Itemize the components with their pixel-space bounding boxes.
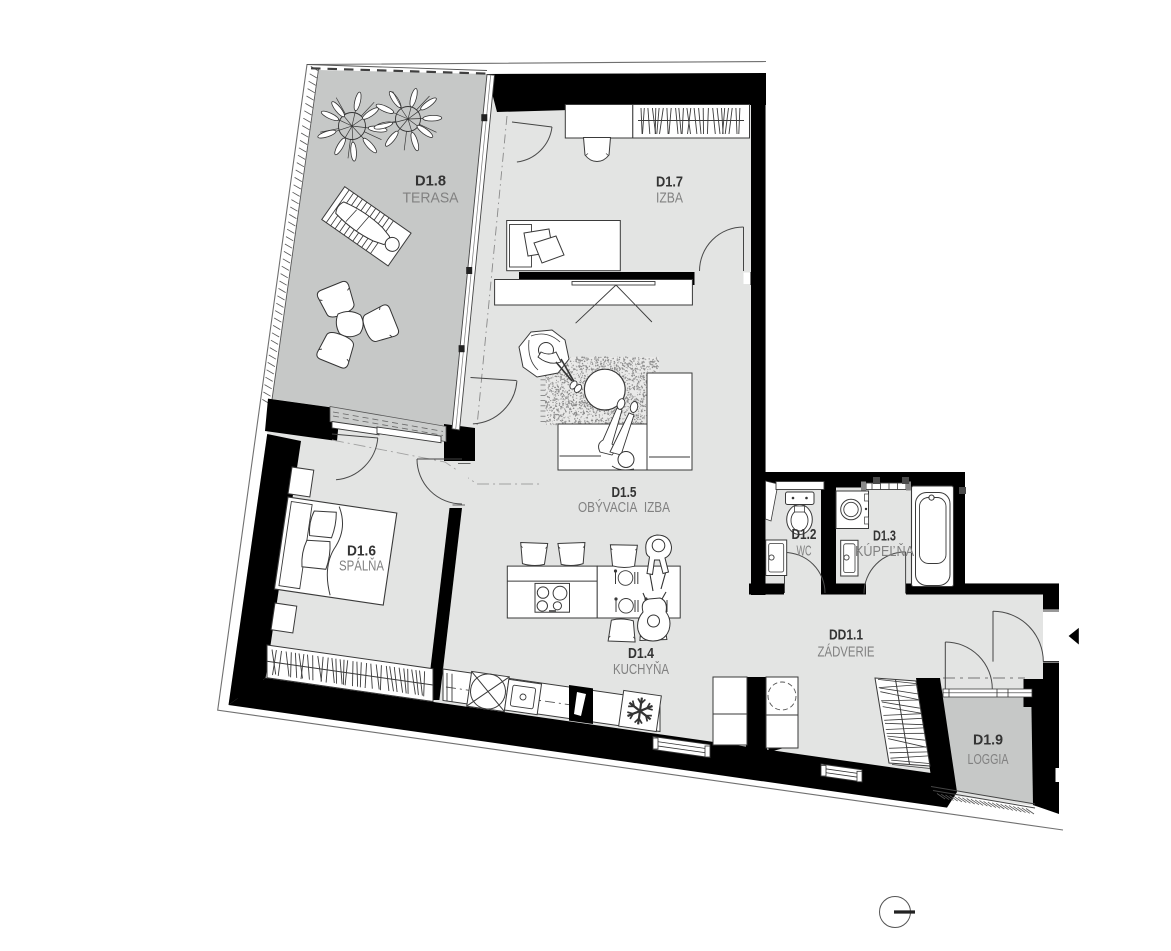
svg-text:KUCHYŇA: KUCHYŇA (613, 661, 670, 678)
svg-text:TERASA: TERASA (403, 190, 460, 207)
svg-text:D1.8: D1.8 (415, 173, 446, 190)
svg-text:LOGGIA: LOGGIA (968, 751, 1010, 768)
svg-text:IZBA: IZBA (656, 190, 684, 207)
svg-text:WC: WC (797, 543, 812, 560)
svg-text:D1.7: D1.7 (656, 174, 683, 191)
svg-text:DD1.1: DD1.1 (829, 627, 863, 644)
svg-text:ZÁDVERIE: ZÁDVERIE (818, 644, 875, 661)
svg-text:D1.2: D1.2 (792, 526, 817, 543)
svg-text:OBÝVACIA IZBA: OBÝVACIA IZBA (578, 499, 671, 516)
svg-text:D1.3: D1.3 (873, 528, 896, 545)
svg-text:D1.9: D1.9 (973, 732, 1003, 749)
svg-text:D1.4: D1.4 (628, 645, 654, 662)
svg-text:SPÁLŇA: SPÁLŇA (339, 558, 385, 575)
svg-text:KÚPEĽŇA: KÚPEĽŇA (855, 543, 915, 560)
